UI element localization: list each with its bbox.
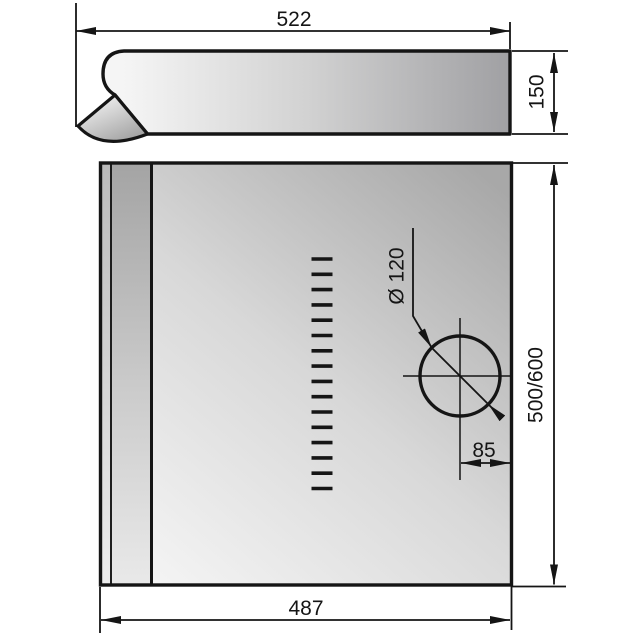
hood-body-panel (101, 163, 512, 585)
technical-drawing: 522 150 (0, 0, 640, 640)
visor-profile (103, 51, 510, 134)
side-view (78, 51, 510, 141)
dim-522-label: 522 (276, 8, 311, 31)
drawing-page: 522 150 (0, 0, 640, 640)
front-view (101, 163, 512, 585)
dim-85-label: 85 (472, 439, 495, 462)
dim-487-label: 487 (288, 597, 323, 620)
dim-120-label: Ø 120 (386, 247, 409, 304)
side-strip-wide (111, 163, 152, 585)
dim-500-600-label: 500/600 (525, 347, 548, 423)
dim-150-label: 150 (526, 74, 549, 109)
